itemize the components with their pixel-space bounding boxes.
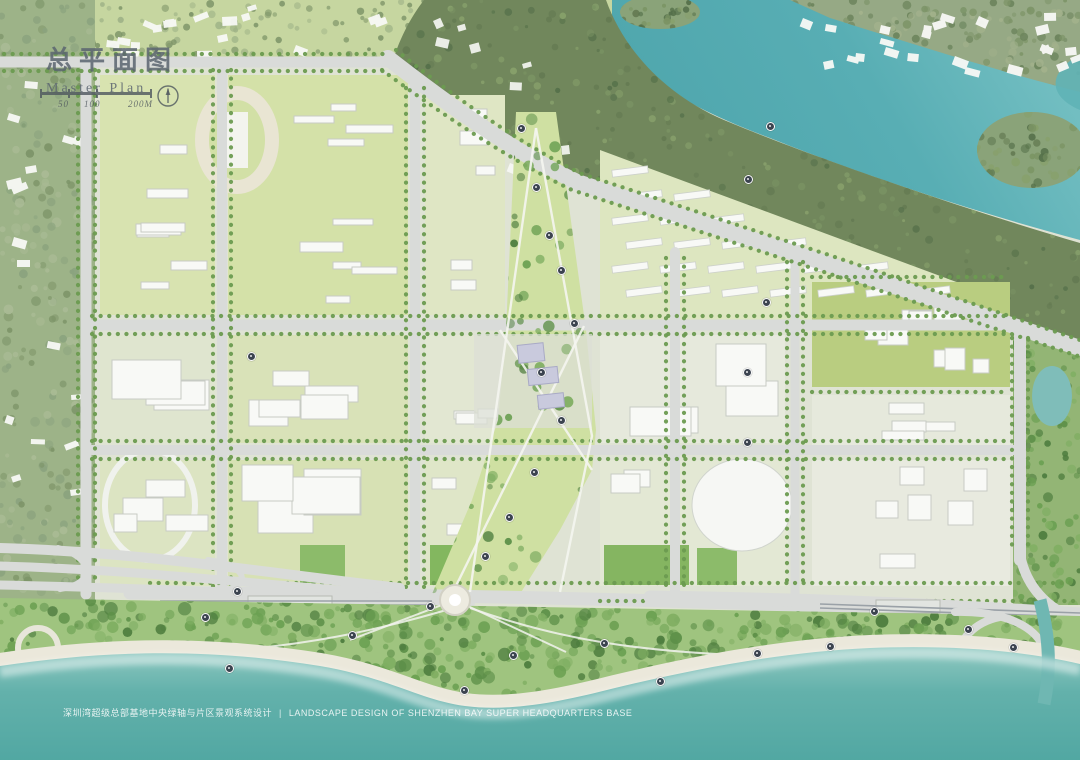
plan-marker [656, 677, 665, 686]
master-plan-canvas: 总平面图 Master Plan 50 100 200M 深圳湾超级总部基地中央… [0, 0, 1080, 760]
plan-marker [600, 639, 609, 648]
plan-marker [1009, 643, 1018, 652]
plan-marker [964, 625, 973, 634]
plan-marker [532, 183, 541, 192]
oval-headquarters-building [692, 459, 792, 551]
plan-marker [557, 266, 566, 275]
plan-marker [570, 319, 579, 328]
scale-bar [40, 92, 152, 95]
plan-artwork [0, 0, 1080, 760]
plan-marker [225, 664, 234, 673]
plan-marker [233, 587, 242, 596]
plan-marker [509, 651, 518, 660]
plan-marker [545, 231, 554, 240]
plan-marker [743, 368, 752, 377]
plan-marker [481, 552, 490, 561]
plan-marker [870, 607, 879, 616]
plan-marker [753, 649, 762, 658]
plan-marker [426, 602, 435, 611]
plan-marker [247, 352, 256, 361]
plan-title-zh: 总平面图 [46, 40, 178, 77]
park-pond [1032, 366, 1072, 426]
plan-marker [762, 298, 771, 307]
bottom-caption: 深圳湾超级总部基地中央绿轴与片区景观系统设计|LANDSCAPE DESIGN … [63, 706, 632, 719]
plan-marker [557, 416, 566, 425]
stadium-track [195, 86, 279, 194]
plan-marker [743, 438, 752, 447]
plan-marker [826, 642, 835, 651]
plan-marker [505, 513, 514, 522]
plan-marker [537, 368, 546, 377]
caption-en: LANDSCAPE DESIGN OF SHENZHEN BAY SUPER H… [289, 708, 633, 718]
plan-marker [517, 124, 526, 133]
plan-marker [348, 631, 357, 640]
north-arrow-icon [156, 84, 180, 108]
plan-marker [766, 122, 775, 131]
plan-marker [530, 468, 539, 477]
caption-separator: | [279, 708, 282, 718]
scale-bar-group: 50 100 200M [40, 92, 220, 99]
caption-zh: 深圳湾超级总部基地中央绿轴与片区景观系统设计 [63, 708, 272, 718]
plan-marker [460, 686, 469, 695]
plan-marker [744, 175, 753, 184]
plan-marker [201, 613, 210, 622]
